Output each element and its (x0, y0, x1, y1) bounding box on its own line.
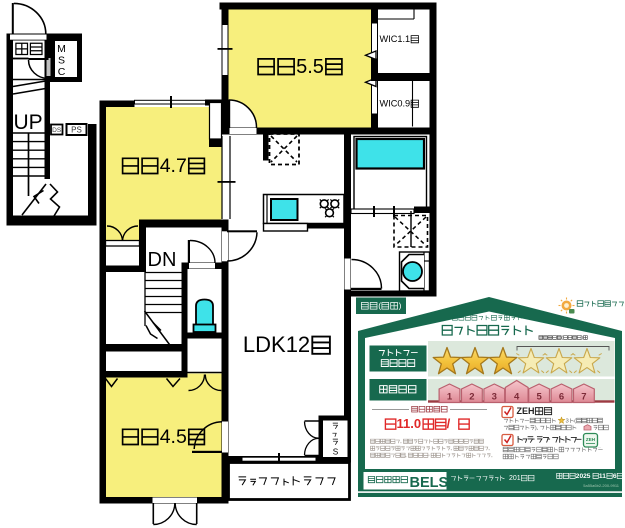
svg-text:LDK12: LDK12 (243, 332, 310, 357)
svg-text:ZEH: ZEH (517, 406, 535, 416)
svg-text:11.0: 11.0 (397, 416, 422, 431)
svg-text:): ) (399, 301, 402, 311)
svg-text:4.5: 4.5 (160, 426, 187, 448)
svg-text:6: 6 (559, 392, 564, 403)
svg-text:1: 1 (447, 392, 453, 403)
svg-text:(: ( (378, 301, 381, 311)
svg-text:5a55a6b2-200-9911: 5a55a6b2-200-9911 (583, 483, 620, 488)
svg-text:C: C (58, 66, 66, 78)
svg-text:): ) (535, 425, 537, 431)
svg-text:S: S (58, 55, 65, 67)
svg-text:11: 11 (599, 473, 606, 480)
svg-text:WIC0.9: WIC0.9 (380, 99, 411, 109)
svg-text:...: ... (598, 444, 601, 449)
svg-text:4: 4 (514, 392, 520, 403)
svg-text:S: S (333, 448, 339, 457)
svg-text:(: ( (574, 418, 576, 424)
svg-text:2: 2 (469, 392, 474, 403)
svg-text:DS: DS (52, 127, 62, 134)
svg-text:7: 7 (581, 392, 586, 403)
svg-text:3: 3 (492, 392, 497, 403)
svg-text:WIC1.1: WIC1.1 (380, 34, 411, 44)
svg-text:ZEH: ZEH (586, 437, 596, 442)
svg-text:/: / (447, 416, 451, 431)
svg-text:BELS: BELS (410, 475, 449, 491)
svg-text:2025: 2025 (576, 473, 591, 480)
svg-text:201: 201 (509, 475, 521, 482)
svg-text:PS: PS (71, 126, 82, 135)
svg-text:5: 5 (536, 392, 542, 403)
svg-text:M: M (57, 43, 66, 55)
svg-text:4.7: 4.7 (160, 155, 187, 177)
svg-text:5.5: 5.5 (296, 56, 324, 78)
svg-text:UP: UP (14, 111, 43, 134)
svg-text:6: 6 (613, 473, 617, 480)
svg-text:DN: DN (148, 249, 177, 271)
